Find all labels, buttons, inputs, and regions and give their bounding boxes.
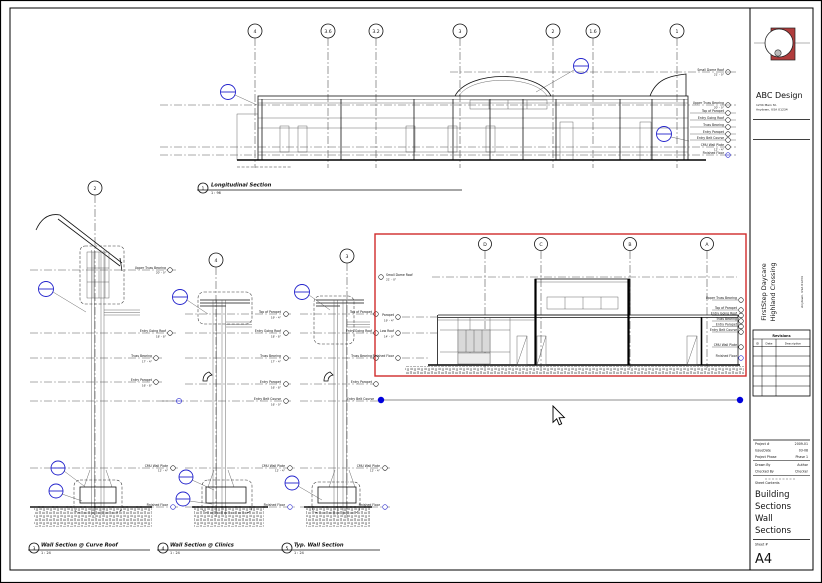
svg-text:Description: Description <box>785 342 802 346</box>
grid-label: 4 <box>254 29 257 35</box>
svg-text:Project Phase: Project Phase <box>755 455 776 459</box>
grid-bubbles-cross: D C B A <box>479 238 714 369</box>
svg-text:1: 1 <box>202 186 205 192</box>
svg-text:4: 4 <box>162 546 165 552</box>
firm-address-2: Anytown, USA 01234 <box>756 108 788 112</box>
elevation-building <box>237 74 706 167</box>
svg-text:Upper Truss Bearing: Upper Truss Bearing <box>706 296 737 300</box>
view-title-typ-wall[interactable]: 5 Typ. Wall Section 1 : 24 <box>281 543 380 556</box>
sheet-border <box>10 8 813 570</box>
svg-text:Top of Parapet: Top of Parapet <box>258 310 282 314</box>
svg-text:Author: Author <box>797 463 808 467</box>
svg-text:Top of Parapet: Top of Parapet <box>714 306 738 310</box>
grid-label: 1.6 <box>589 29 596 35</box>
view-title-wall-clinics[interactable]: 4 Wall Section @ Clinics 1 : 24 <box>157 543 283 556</box>
svg-text:19' - 4": 19' - 4" <box>271 315 282 319</box>
firm-address-1: 1234 Main St. <box>756 103 777 107</box>
project-info-fields: Project #2009-01 IssueDate03-08 Project … <box>753 440 810 479</box>
svg-text:3: 3 <box>33 546 36 552</box>
svg-text:Entry Belt Course: Entry Belt Course <box>710 328 737 332</box>
svg-text:16' - 0": 16' - 0" <box>271 402 282 406</box>
svg-text:Finished Floor: Finished Floor <box>147 503 169 507</box>
svg-text:Longitudinal Section: Longitudinal Section <box>211 183 272 189</box>
svg-text:ID: ID <box>756 342 760 346</box>
svg-text:Entry Going Roof: Entry Going Roof <box>698 116 725 120</box>
svg-text:Low Roof: Low Roof <box>380 329 395 333</box>
svg-text:12' - 4": 12' - 4" <box>370 468 381 472</box>
firm-name: ABC Design <box>756 91 803 100</box>
svg-text:Upper Truss Bearing: Upper Truss Bearing <box>135 266 166 270</box>
svg-text:16' - 8": 16' - 8" <box>271 385 282 389</box>
viewport-cross-section[interactable]: D C B A Small Do <box>373 234 746 376</box>
selected-view-title-line[interactable] <box>378 397 743 403</box>
svg-text:Top of Parapet: Top of Parapet <box>701 109 725 113</box>
svg-text:Entry Parapet: Entry Parapet <box>260 380 282 384</box>
svg-text:Entry Belt Course: Entry Belt Course <box>697 136 724 140</box>
svg-text:Entry Belt Course: Entry Belt Course <box>347 397 374 401</box>
grid-label: 1 <box>676 29 679 35</box>
svg-text:CMU Wall Plate: CMU Wall Plate <box>262 464 285 468</box>
svg-text:Finished Floor: Finished Floor <box>703 151 725 155</box>
grid-label: 3 <box>346 254 349 260</box>
svg-text:A: A <box>705 242 709 248</box>
svg-text:1 : 24: 1 : 24 <box>170 551 180 555</box>
grid-label: 2 <box>552 29 555 35</box>
grid-label: 3.2 <box>372 29 379 35</box>
svg-text:21' - 0": 21' - 0" <box>714 72 725 76</box>
view-title-wall-curve-roof[interactable]: 3 Wall Section @ Curve Roof 1 : 24 <box>28 543 150 556</box>
svg-text:Wall Section @ Curve Roof: Wall Section @ Curve Roof <box>41 543 119 549</box>
svg-text:Small Dome Roof: Small Dome Roof <box>386 273 414 277</box>
svg-text:Truss Bearing: Truss Bearing <box>259 354 281 358</box>
viewport-longitudinal-section[interactable]: 4 3.6 3.2 3 2 1.6 1 <box>160 24 736 195</box>
svg-text:18' - 8": 18' - 8" <box>271 334 282 338</box>
svg-text:Entry Going Roof: Entry Going Roof <box>346 329 373 333</box>
svg-text:Entry Going Roof: Entry Going Roof <box>255 329 282 333</box>
sheet-number-label: Sheet # <box>755 543 768 547</box>
svg-text:Truss Bearing: Truss Bearing <box>715 317 737 321</box>
cross-left-level-tags: Small Dome Roof21' - 0" Parapet19' - 4" … <box>373 273 437 360</box>
svg-text:Wall Section @ Clinics: Wall Section @ Clinics <box>170 543 234 549</box>
project-name-line1: FirstStep Daycare <box>760 263 768 320</box>
logo-dot <box>775 50 781 56</box>
mouse-cursor <box>553 406 564 425</box>
viewport-wall-section-curve-roof[interactable]: 2 Upper Truss Bearing20' - 0" Entry Goin… <box>30 181 178 527</box>
svg-text:20' - 0": 20' - 0" <box>156 270 167 274</box>
svg-text:CMU Wall Plate: CMU Wall Plate <box>714 343 737 347</box>
svg-text:Date: Date <box>766 342 773 346</box>
svg-text:B: B <box>628 242 631 248</box>
svg-text:Entry Going Roof: Entry Going Roof <box>711 312 738 316</box>
svg-text:1 : 24: 1 : 24 <box>294 551 304 555</box>
svg-text:Top of Parapet: Top of Parapet <box>349 310 373 314</box>
svg-text:Checked By: Checked By <box>755 470 774 474</box>
view-title-longitudinal[interactable]: 1 Longitudinal Section 1 : 96 <box>197 183 462 196</box>
svg-text:Revisions: Revisions <box>772 334 790 338</box>
sheet-drawing: 4 3.6 3.2 3 2 1.6 1 <box>0 0 822 583</box>
svg-text:Truss Bearing: Truss Bearing <box>130 354 152 358</box>
grid-label: 2 <box>94 186 97 192</box>
svg-text:5: 5 <box>286 546 289 552</box>
svg-text:18' - 8": 18' - 8" <box>156 334 167 338</box>
svg-text:2009-01: 2009-01 <box>795 442 808 446</box>
svg-text:CMU Wall Plate: CMU Wall Plate <box>357 464 380 468</box>
sheet-contents-label: Sheet Contents <box>755 481 780 485</box>
project-address: Anytown, USA 01234 <box>800 276 804 308</box>
drag-grip[interactable] <box>378 397 384 403</box>
wall-B-levels: Top of Parapet19' - 4" Entry Going Roof1… <box>162 310 295 509</box>
svg-text:21' - 0": 21' - 0" <box>386 278 397 282</box>
svg-text:Finished Floor: Finished Floor <box>264 503 286 507</box>
svg-text:Entry Parapet: Entry Parapet <box>716 323 738 327</box>
svg-text:Typ. Wall Section: Typ. Wall Section <box>294 543 344 549</box>
svg-text:Finished Floor: Finished Floor <box>716 354 738 358</box>
svg-text:Truss Bearing: Truss Bearing <box>350 354 372 358</box>
svg-text:CMU Wall Plate: CMU Wall Plate <box>701 143 724 147</box>
svg-text:Phase 1: Phase 1 <box>795 455 808 459</box>
elevation-level-tags: Small Dome Roof21' - 0" Upper Truss Bear… <box>693 68 731 157</box>
svg-text:17' - 4": 17' - 4" <box>271 359 282 363</box>
svg-text:12' - 4": 12' - 4" <box>158 468 169 472</box>
cross-building <box>405 277 744 374</box>
svg-text:03-08: 03-08 <box>799 449 808 453</box>
svg-text:Entry Parapet: Entry Parapet <box>351 380 373 384</box>
svg-text:14' - 0": 14' - 0" <box>384 334 395 338</box>
svg-text:Sections: Sections <box>755 502 792 512</box>
svg-text:Wall: Wall <box>755 514 773 524</box>
image-frame <box>1 1 822 583</box>
revisions-table: Revisions ID Date Description <box>753 330 810 396</box>
svg-text:Project #: Project # <box>755 442 770 446</box>
grid-label: 3.6 <box>324 29 331 35</box>
svg-text:CMU Wall Plate: CMU Wall Plate <box>145 464 168 468</box>
svg-text:12' - 4": 12' - 4" <box>275 468 286 472</box>
detail-callout-icon[interactable] <box>221 59 690 142</box>
svg-text:C: C <box>539 242 542 248</box>
svg-text:Finished Floor: Finished Floor <box>373 354 395 358</box>
svg-text:Entry Belt Course: Entry Belt Course <box>254 397 281 401</box>
wall-B-graphics <box>192 292 268 527</box>
svg-text:Entry Parapet: Entry Parapet <box>703 130 725 134</box>
drag-grip[interactable] <box>737 397 743 403</box>
wall-A-graphics <box>30 215 152 527</box>
svg-text:Building: Building <box>755 490 789 500</box>
svg-text:Entry Going Roof: Entry Going Roof <box>140 329 167 333</box>
titleblock: ABC Design 1234 Main St. Anytown, USA 01… <box>753 28 810 567</box>
svg-text:Sections: Sections <box>755 526 792 536</box>
sheet-view-canvas: 4 3.6 3.2 3 2 1.6 1 <box>0 0 822 583</box>
project-name-line2: Highland Crossing <box>769 263 777 322</box>
viewport-wall-section-clinics[interactable]: 4 Top of Parapet19' - 4" Entry Going Roo… <box>162 253 295 527</box>
viewport-typ-wall-section[interactable]: 3 Top of Parapet Entry Going Roof Truss … <box>285 249 390 527</box>
svg-text:Parapet: Parapet <box>382 313 395 317</box>
wall-C-levels: Top of Parapet Entry Going Roof Truss Be… <box>300 310 390 509</box>
svg-text:16' - 8": 16' - 8" <box>142 383 153 387</box>
svg-text:1 : 24: 1 : 24 <box>41 551 51 555</box>
svg-text:Small Dome Roof: Small Dome Roof <box>697 68 725 72</box>
svg-text:D: D <box>483 242 487 248</box>
svg-text:Drawn By: Drawn By <box>755 463 771 467</box>
grid-label: 4 <box>215 258 218 264</box>
svg-text:Upper Truss Bearing: Upper Truss Bearing <box>693 101 724 105</box>
grid-label: 3 <box>459 29 462 35</box>
svg-text:IssueDate: IssueDate <box>755 449 771 453</box>
svg-text:19' - 4": 19' - 4" <box>384 318 395 322</box>
sheet-contents: Building Sections Wall Sections <box>755 490 792 536</box>
sheet-number: A4 <box>755 552 772 567</box>
svg-text:Truss Bearing: Truss Bearing <box>702 123 724 127</box>
svg-text:Entry Parapet: Entry Parapet <box>131 378 153 382</box>
svg-text:17' - 4": 17' - 4" <box>142 359 153 363</box>
svg-text:1 : 96: 1 : 96 <box>211 191 221 195</box>
svg-text:Finished Floor: Finished Floor <box>359 503 381 507</box>
detail-callout-icon[interactable] <box>173 290 215 507</box>
svg-text:Checker: Checker <box>795 470 809 474</box>
